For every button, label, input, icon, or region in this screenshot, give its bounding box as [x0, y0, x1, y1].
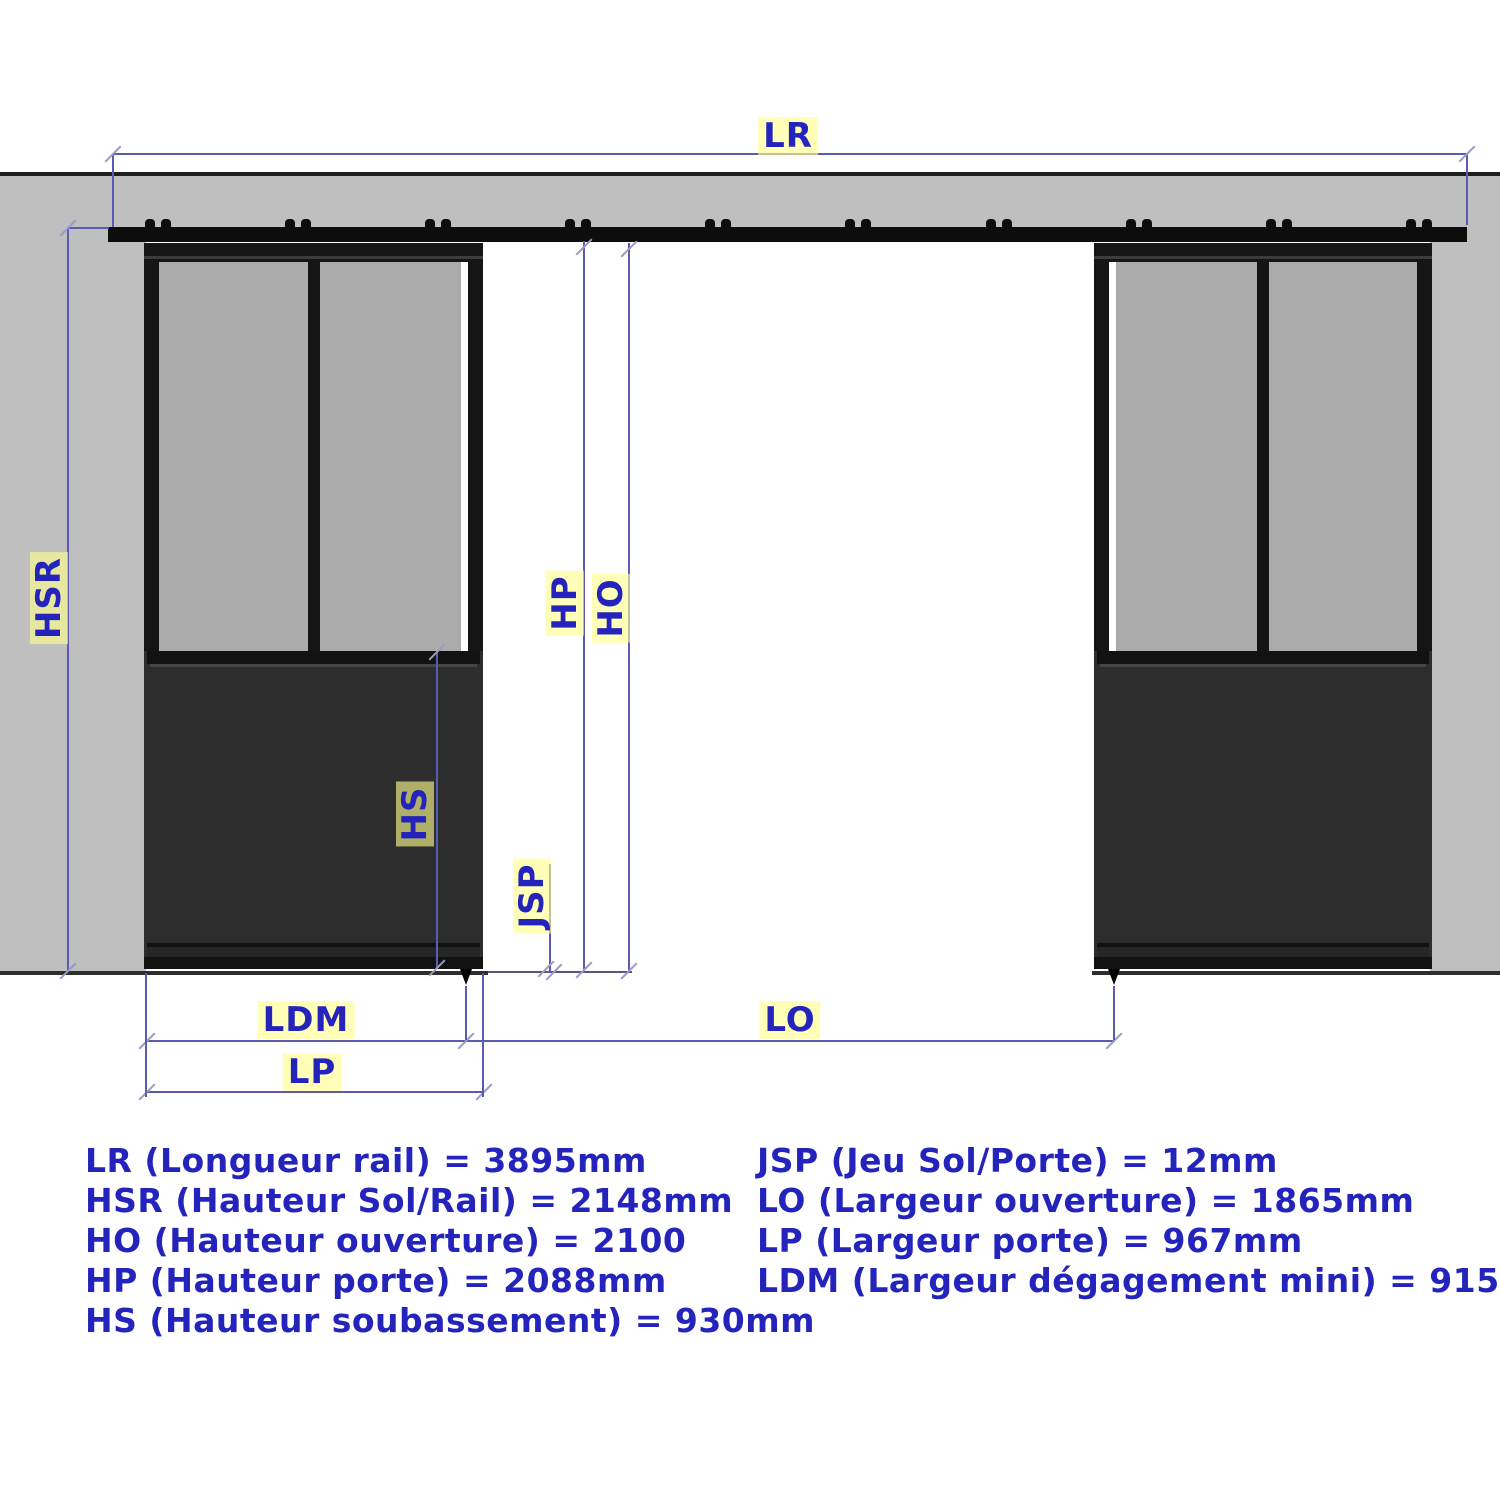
floor-line-right [1092, 971, 1500, 975]
rail-bracket [1266, 219, 1292, 227]
rail-bracket [565, 219, 591, 227]
dim-ldm-line [146, 1040, 466, 1042]
door-right-soubassement [1094, 651, 1432, 969]
opening-edge-marker-left [460, 969, 472, 985]
rail-bracket [145, 219, 171, 227]
dim-hp-label: HP [546, 570, 584, 635]
legend-line-ldm: LDM (Largeur dégagement mini) = 915mm [757, 1261, 1500, 1301]
opening-edge-through-glass [461, 262, 468, 651]
dim-hsr-conn [67, 227, 109, 229]
ext-door-left-edge [145, 973, 147, 1097]
legend-line-lr: LR (Longueur rail) = 3895mm [85, 1141, 815, 1181]
floor-line-left [0, 971, 488, 975]
legend-line-lp: LP (Largeur porte) = 967mm [757, 1221, 1500, 1261]
sliding-door-right [1094, 243, 1432, 969]
legend-line-hp: HP (Hauteur porte) = 2088mm [85, 1261, 815, 1301]
ext-opening-left-edge [465, 986, 467, 1040]
dim-ldm-label: LDM [258, 1001, 355, 1039]
dim-hs-line [436, 651, 438, 969]
dim-ho-label: HO [592, 573, 630, 642]
dim-lr-ext-left [112, 155, 114, 227]
dim-lr-ext-right [1466, 155, 1468, 225]
legend-line-hsr: HSR (Hauteur Sol/Rail) = 2148mm [85, 1181, 815, 1221]
wall-pillar-left [0, 227, 146, 971]
wall-pillar-right [1430, 227, 1500, 971]
legend-line-lo: LO (Largeur ouverture) = 1865mm [757, 1181, 1500, 1221]
rail-bracket [425, 219, 451, 227]
door-right-mullion [1257, 262, 1269, 651]
opening-edge-through-glass [1109, 262, 1116, 651]
dim-lp-label: LP [283, 1053, 342, 1091]
dim-lo-label: LO [759, 1001, 820, 1039]
legend-line-jsp: JSP (Jeu Sol/Porte) = 12mm [757, 1141, 1500, 1181]
legend-left-column: LR (Longueur rail) = 3895mm HSR (Hauteur… [85, 1141, 815, 1341]
rail-bracket [705, 219, 731, 227]
door-left-glass [159, 262, 468, 651]
rail-bracket [1406, 219, 1432, 227]
door-top-seam [144, 256, 483, 259]
ext-opening-right-edge [1113, 986, 1115, 1040]
rail-bracket [986, 219, 1012, 227]
dim-hsr-label: HSR [30, 552, 68, 644]
rail-bracket [845, 219, 871, 227]
dim-lr-label: LR [758, 117, 818, 155]
rail-bracket [1126, 219, 1152, 227]
door-left-mullion [308, 262, 320, 651]
door-right-glass [1109, 262, 1417, 651]
dim-hs-label: HS [396, 782, 434, 847]
ext-door-right-edge [482, 973, 484, 1097]
sliding-door-left [144, 243, 483, 969]
opening-edge-marker-right [1108, 969, 1120, 985]
legend-right-column: JSP (Jeu Sol/Porte) = 12mm LO (Largeur o… [757, 1141, 1500, 1301]
door-technical-drawing: LR HSR HP HO HS JSP LDM LO LP LR (Longue… [0, 0, 1500, 1500]
rail-bracket [285, 219, 311, 227]
legend-line-hs: HS (Hauteur soubassement) = 930mm [85, 1301, 815, 1341]
legend-line-ho: HO (Hauteur ouverture) = 2100 [85, 1221, 815, 1261]
floor-extension-line [488, 971, 632, 973]
door-top-seam [1094, 256, 1432, 259]
dim-jsp-label: JSP [513, 858, 551, 933]
dim-lo-line [466, 1040, 1115, 1042]
sliding-rail [108, 227, 1467, 242]
